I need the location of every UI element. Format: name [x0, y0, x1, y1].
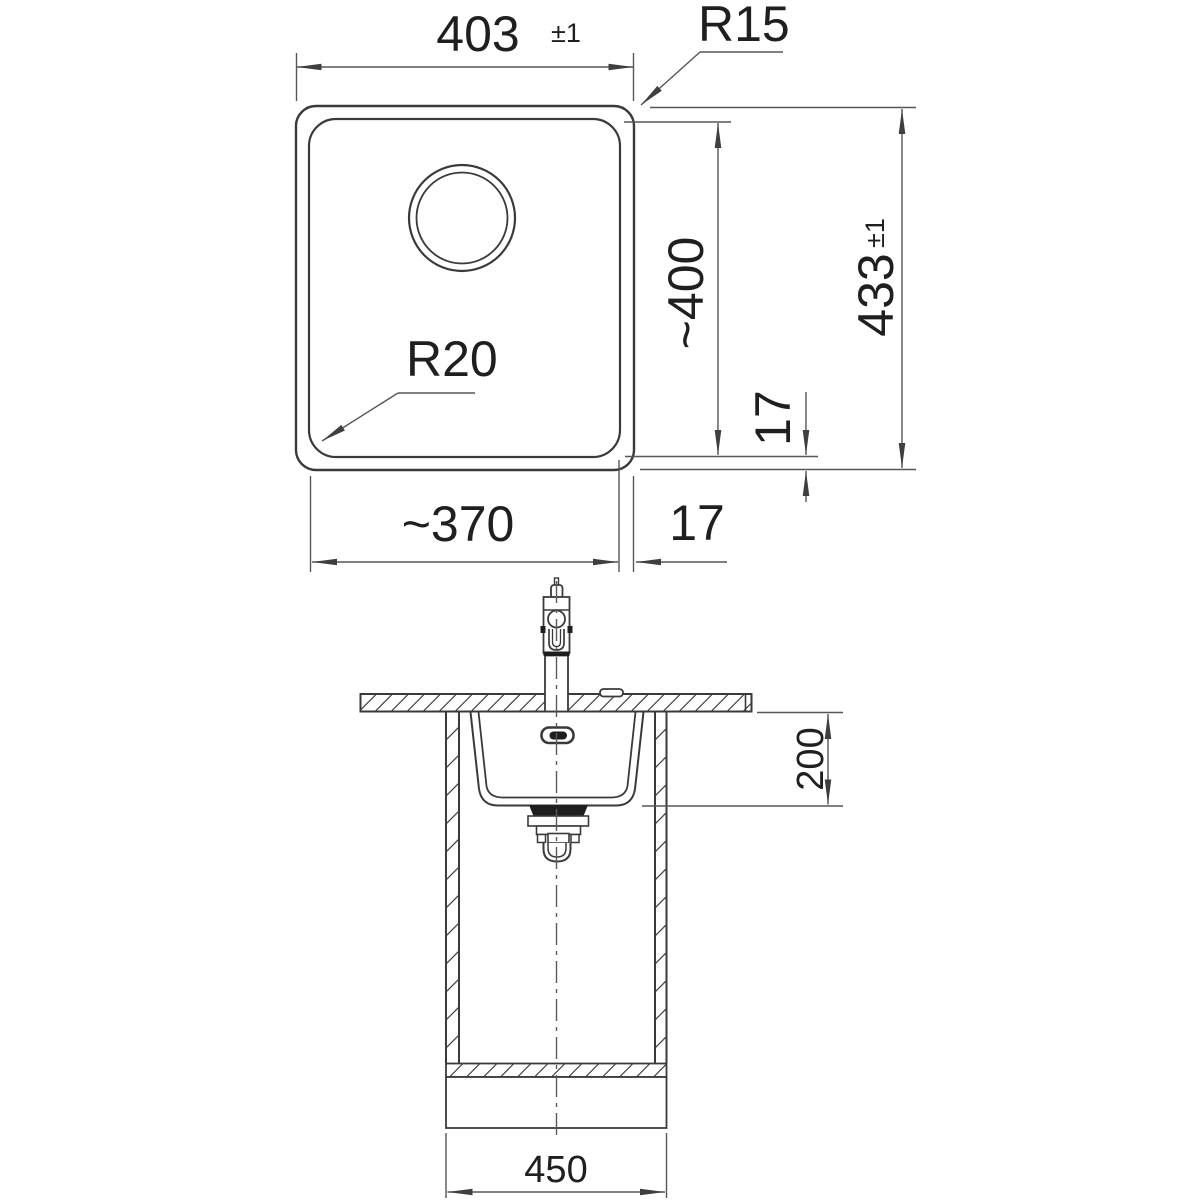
dim-tolerance-403: ±1	[551, 18, 581, 48]
dimension-bowl-width: ~370	[311, 460, 620, 572]
overflow-slot	[550, 732, 568, 740]
drain-flange	[529, 805, 588, 816]
label-r15: R15	[698, 0, 790, 52]
cabinet-left-wall	[95, 712, 1147, 1064]
dimension-overall-width: 403 ±1	[297, 6, 634, 101]
cabinet-right-wall	[304, 712, 1200, 1064]
dim-label-400: ~400	[658, 237, 714, 350]
dim-label-370: ~370	[402, 496, 515, 552]
cabinet-bottom-shelf	[433, 1064, 685, 1078]
dim-label-17-horizontal: 17	[669, 495, 725, 551]
drain-assembly	[528, 805, 589, 862]
dimension-cabinet-width: 450	[446, 1133, 667, 1198]
left-wall-hatching	[95, 712, 1147, 1064]
dim-tolerance-433: ±1	[860, 218, 890, 248]
dim-label-200: 200	[790, 727, 832, 790]
sink-technical-drawing-page: 403 ±1 R15 R20 ~400 433	[0, 0, 1200, 1200]
dimension-rim-bottom: 17	[745, 390, 806, 502]
technical-drawing: 403 ±1 R15 R20 ~400 433	[0, 0, 1200, 1200]
callout-corner-radius-outer: R15	[641, 0, 790, 105]
label-r20: R20	[406, 331, 498, 387]
dim-label-433: 433	[848, 253, 904, 336]
sink-outer-outline	[296, 106, 634, 470]
plan-view: 403 ±1 R15 R20 ~400 433	[296, 0, 916, 572]
dimension-bowl-depth: 200	[642, 713, 843, 807]
dimension-rim-right: 17	[634, 476, 728, 572]
right-wall-hatching	[304, 712, 1200, 1064]
faucet-base-band	[544, 652, 570, 657]
section-view: 200 450	[95, 578, 1200, 1198]
dim-label-403: 403	[436, 6, 519, 62]
dim-label-17-vertical: 17	[745, 390, 801, 446]
tap-hole-cover	[600, 689, 623, 697]
dim-label-450: 450	[524, 1149, 587, 1191]
